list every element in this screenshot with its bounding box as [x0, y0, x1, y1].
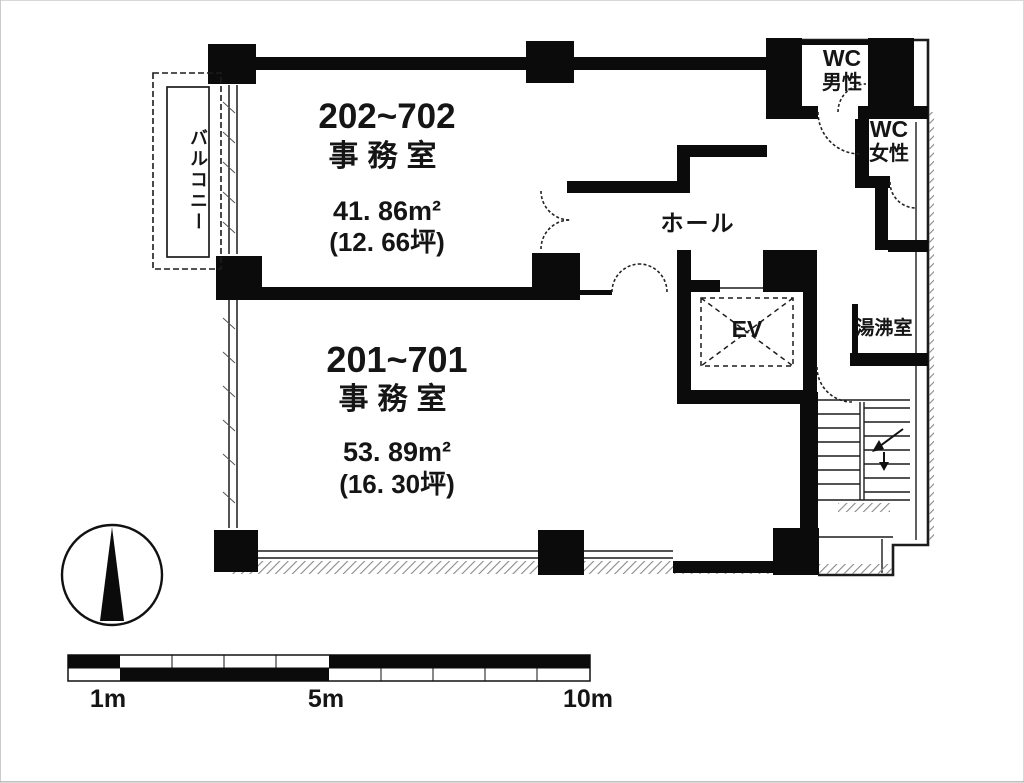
room-201-area: 53. 89m² [297, 437, 497, 467]
room-201-name: 201~701 [297, 340, 497, 380]
door-kitchenette [817, 367, 852, 402]
ev-wall-south [677, 390, 817, 404]
room-202-name: 202~702 [287, 97, 487, 136]
wc-female-line2: 女性 [860, 143, 918, 165]
room-202-area: 41. 86m² [287, 196, 487, 226]
stair-divider [860, 402, 864, 500]
door-202-lower-leaf [541, 220, 570, 249]
ev-wall-north-stub [691, 280, 720, 292]
scan-edge-bottom [0, 781, 1024, 782]
wall-top [230, 57, 796, 70]
window-bottom-left [258, 551, 538, 558]
wall-top-right-corner [766, 38, 802, 116]
wall-kitchenette-north [888, 240, 928, 252]
wc-male-line2: 男性 [812, 72, 872, 94]
scale-bar [68, 655, 590, 681]
column-top-mid [526, 41, 574, 83]
scale-seg-top-0-1 [68, 655, 120, 668]
room-201-type: 事務室 [297, 383, 497, 417]
scale-label-5m: 5m [306, 685, 346, 713]
wall-hall-step-lower [567, 181, 689, 193]
column-bottom-left [214, 530, 258, 572]
north-compass [62, 525, 162, 625]
scale-label-1m: 1m [88, 685, 128, 713]
wall-thin-by-door [580, 290, 612, 295]
room-202-type: 事務室 [287, 140, 487, 174]
wc-male-label: WC 男性 [812, 46, 872, 94]
door-wc-corridor [818, 112, 860, 154]
column-divider-right [532, 253, 580, 300]
hall-label: ホール [648, 211, 748, 237]
floorplan-canvas: バルコニー 202~702 事務室 41. 86m² (12. 66坪) 201… [0, 0, 1024, 783]
ev-wall-northeast [763, 250, 817, 292]
scan-edge-left [0, 0, 1, 783]
wall-hall-step-upper [677, 145, 767, 157]
wall-below-wcf [875, 188, 888, 250]
column-bottom-mid [538, 530, 584, 575]
room-202-tsubo: (12. 66坪) [287, 228, 487, 257]
ev-wall-west [677, 250, 691, 404]
stair-treads-right [864, 408, 910, 492]
door-201-right-leaf [640, 264, 667, 292]
wall-room-divider [255, 287, 580, 300]
column-top-left [208, 44, 256, 84]
window-bottom-mid [584, 551, 673, 558]
balcony-label: バルコニー [180, 112, 208, 248]
column-bottom-right [773, 528, 819, 575]
scale-seg-top-5-10 [329, 655, 590, 668]
window-left-lower [229, 300, 237, 528]
elevator-label: EV [727, 317, 767, 343]
kitchenette-label: 湯沸室 [847, 318, 921, 339]
wall-kitchenette-south [850, 353, 928, 366]
room-201-tsubo: (16. 30坪) [297, 470, 497, 499]
scale-seg-bottom-1-5 [120, 668, 329, 681]
wall-wc-south-left [766, 106, 818, 119]
wall-wcf-south [855, 176, 890, 188]
wc-female-label: WC 女性 [860, 117, 918, 165]
wc-male-line1: WC [812, 46, 872, 72]
duct-block [868, 38, 914, 108]
scale-label-10m: 10m [560, 685, 616, 713]
door-201-left-leaf [612, 264, 640, 292]
wc-female-line1: WC [860, 117, 918, 143]
staircase [818, 400, 910, 500]
door-wc-female [890, 182, 916, 208]
stair-treads-left [818, 414, 860, 484]
door-202-upper-leaf [541, 191, 570, 220]
column-left-mid [216, 256, 262, 300]
